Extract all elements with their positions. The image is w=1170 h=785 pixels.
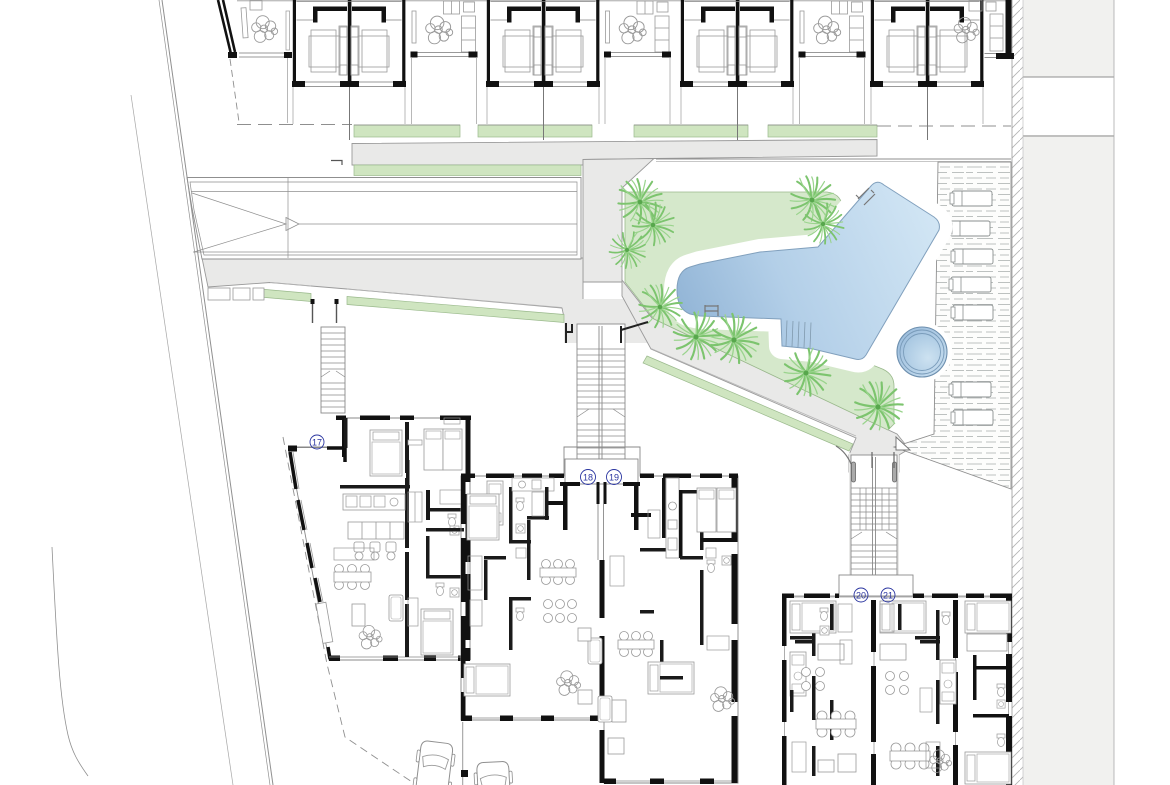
svg-text:21: 21 — [883, 591, 893, 601]
svg-text:18: 18 — [583, 473, 593, 483]
svg-text:19: 19 — [609, 473, 619, 483]
svg-text:20: 20 — [856, 591, 866, 601]
svg-text:17: 17 — [312, 438, 322, 448]
